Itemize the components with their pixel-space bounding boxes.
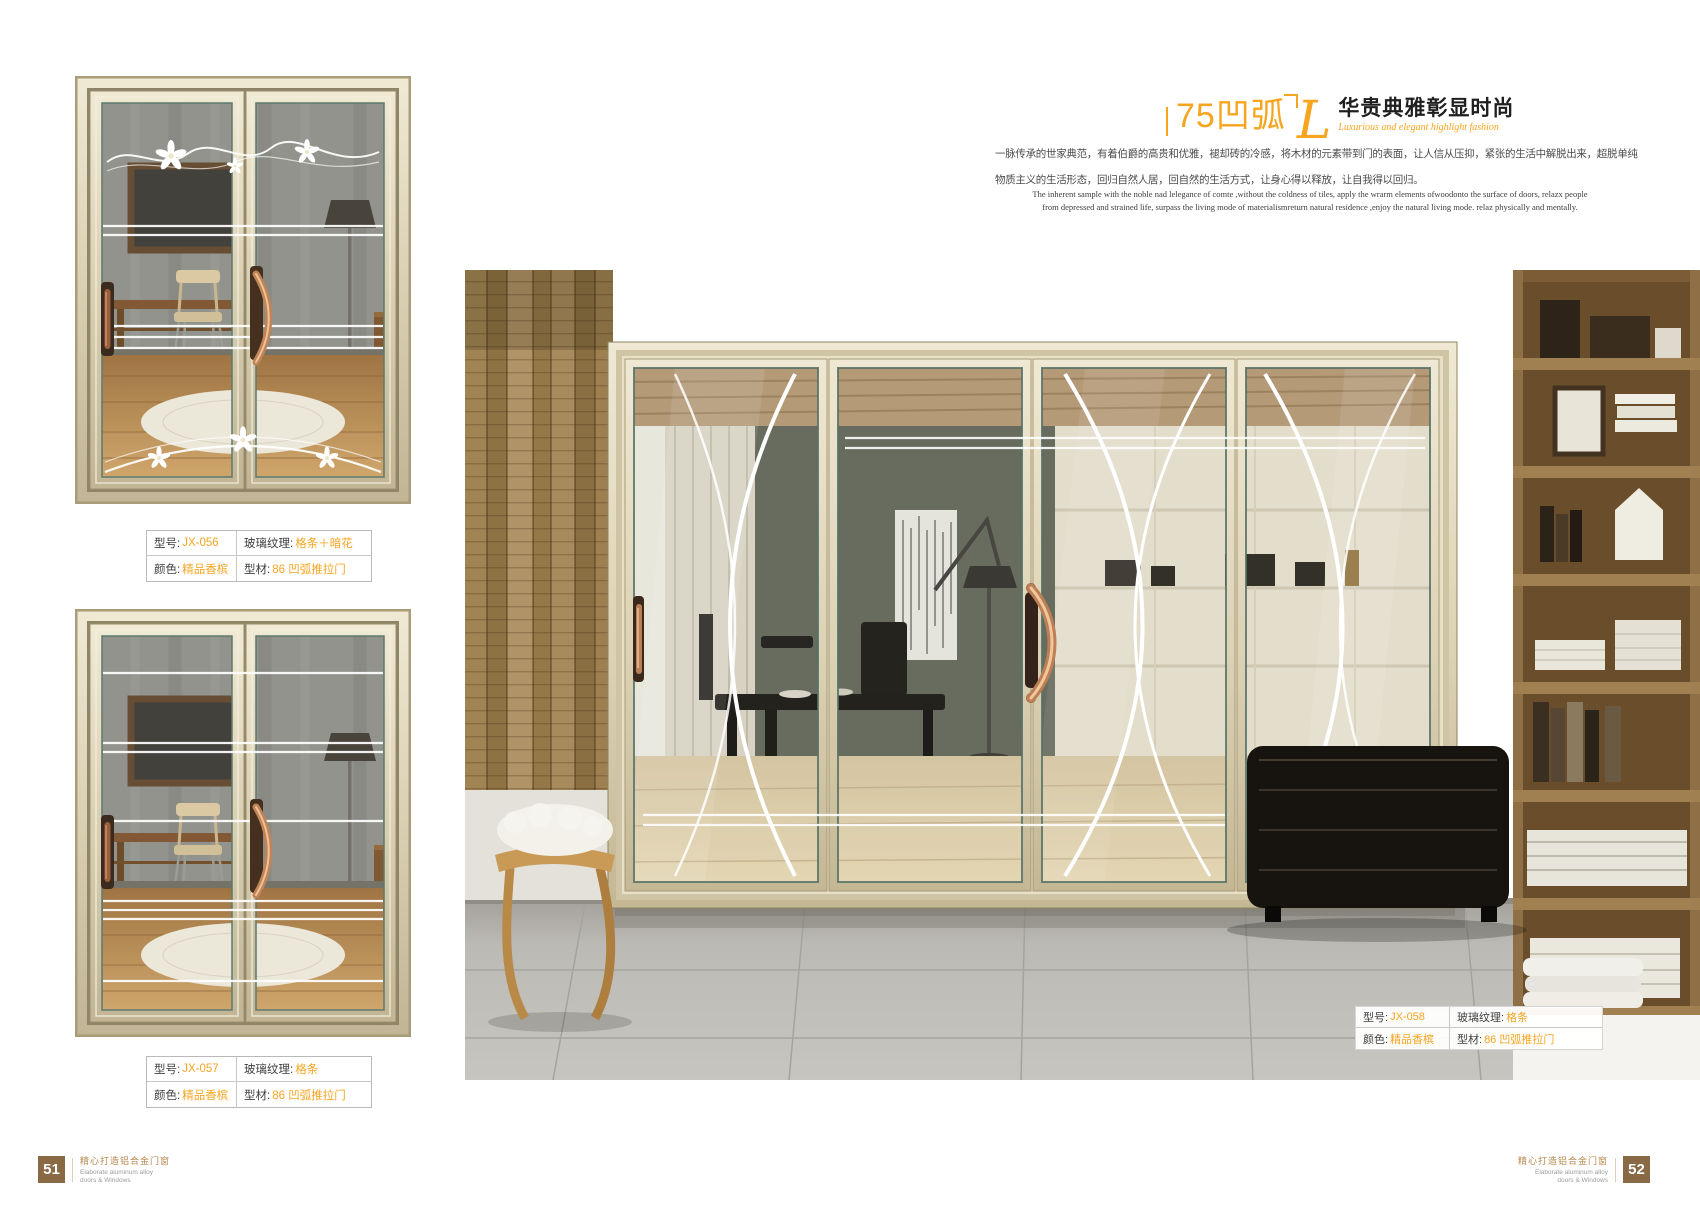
- spec-value: 精品香槟: [182, 561, 228, 577]
- spec-cell-profile: 型材:86 凹弧推拉门: [237, 1082, 371, 1107]
- product-photo-jx056: [75, 76, 411, 504]
- spec-cell-profile: 型材:86 凹弧推拉门: [237, 556, 371, 581]
- intro-cn-line1: 一脉传承的世家典范，有着伯爵的高贵和优雅，褪却砖的冷感，将木材的元素带到门的表面…: [995, 141, 1645, 167]
- footer-caption: 精心打造铝合金门窗 Elaborate aluminum alloy doors…: [1518, 1154, 1608, 1185]
- spec-label: 型材:: [244, 561, 270, 577]
- spec-table-jx058: 型号:JX-058 玻璃纹理:格条 颜色:86 凹弧推拉门精品香槟 型材:86 …: [1355, 1006, 1603, 1050]
- spec-value: 精品香槟: [182, 1087, 228, 1103]
- spec-value: 86 凹弧推拉门: [1484, 1031, 1554, 1047]
- spec-table-jx057: 型号:JX-057 玻璃纹理:格条 颜色:精品香槟 型材:86 凹弧推拉门: [146, 1056, 372, 1108]
- spec-table-jx056: 型号:JX-056 玻璃纹理:格条＋暗花 颜色:精品香槟 型材:86 凹弧推拉门: [146, 530, 372, 582]
- spec-cell-model: 型号:JX-057: [147, 1057, 237, 1082]
- footer-left: 51 精心打造铝合金门窗 Elaborate aluminum alloy do…: [38, 1154, 170, 1185]
- spec-cell-model: 型号:JX-058: [1356, 1007, 1450, 1028]
- intro-paragraph-en: The inherent sample with the noble nad l…: [988, 188, 1632, 213]
- door-illustration-jx056: [75, 76, 411, 504]
- intro-en-line2: from depressed and strained life, surpas…: [988, 201, 1632, 214]
- spec-value: 86 凹弧推拉门: [272, 1087, 346, 1103]
- spec-cell-color: 颜色:精品香槟: [147, 1082, 237, 1107]
- intro-en-line1: The inherent sample with the noble nad l…: [988, 188, 1632, 201]
- footer-divider: [1615, 1158, 1616, 1182]
- door-illustration-jx057: [75, 608, 411, 1038]
- series-title: 华贵典雅彰显时尚: [1338, 97, 1514, 120]
- spec-label: 型号:: [154, 1061, 180, 1077]
- spec-value: JX-057: [182, 1063, 218, 1075]
- spec-cell-glass: 玻璃纹理:格条: [1450, 1007, 1602, 1028]
- series-brand: 75凹弧: [1172, 99, 1290, 133]
- spec-cell-glass: 玻璃纹理:格条＋暗花: [237, 531, 371, 556]
- spec-value: 精品香槟: [1390, 1031, 1434, 1047]
- spec-cell-color: 颜色:86 凹弧推拉门精品香槟: [1356, 1028, 1450, 1049]
- spec-label: 型号:: [154, 535, 180, 551]
- bookshelf: [1513, 270, 1700, 1015]
- footer-caption-en-line1: Elaborate aluminum alloy: [80, 1169, 170, 1177]
- page-number-left: 51: [38, 1156, 65, 1183]
- spec-cell-model: 型号:JX-056: [147, 531, 237, 556]
- spec-label: 型号:: [1363, 1009, 1388, 1025]
- spec-label: 颜色:: [154, 561, 180, 577]
- footer-right: 精心打造铝合金门窗 Elaborate aluminum alloy doors…: [1518, 1154, 1650, 1185]
- series-title-block: 华贵典雅彰显时尚 Luxurious and elegant highlight…: [1338, 97, 1514, 133]
- catalog-page: 型号:JX-056 玻璃纹理:格条＋暗花 颜色:精品香槟 型材:86 凹弧推拉门: [0, 0, 1700, 1209]
- intro-paragraph-cn: 一脉传承的世家典范，有着伯爵的高贵和优雅，褪却砖的冷感，将木材的元素带到门的表面…: [995, 141, 1645, 193]
- footer-caption-en-line2: doors & Windows: [1518, 1177, 1608, 1185]
- spec-value: JX-056: [182, 537, 218, 549]
- spec-cell-profile: 型材:86 凹弧推拉门: [1450, 1028, 1602, 1049]
- footer-divider: [72, 1158, 73, 1182]
- spec-label: 玻璃纹理:: [244, 535, 293, 551]
- footer-caption-cn: 精心打造铝合金门窗: [80, 1154, 170, 1167]
- script-flourish: L: [1297, 102, 1332, 141]
- footer-caption-en-line2: doors & Windows: [80, 1177, 170, 1185]
- footer-caption-en: Elaborate aluminum alloy doors & Windows: [1518, 1169, 1608, 1185]
- spec-label: 型材:: [244, 1087, 270, 1103]
- spec-value: 格条＋暗花: [295, 535, 353, 551]
- page-number-right: 52: [1623, 1156, 1650, 1183]
- spec-value: 格条: [295, 1061, 318, 1077]
- spec-label: 玻璃纹理:: [244, 1061, 293, 1077]
- product-photo-jx057: [75, 608, 411, 1038]
- showcase-photo-jx058: 型号:JX-058 玻璃纹理:格条 颜色:86 凹弧推拉门精品香槟 型材:86 …: [465, 270, 1700, 1080]
- footer-caption-en-line1: Elaborate aluminum alloy: [1518, 1169, 1608, 1177]
- spec-cell-glass: 玻璃纹理:格条: [237, 1057, 371, 1082]
- spec-label: 玻璃纹理:: [1457, 1009, 1504, 1025]
- spec-cell-color: 颜色:精品香槟: [147, 556, 237, 581]
- footer-caption: 精心打造铝合金门窗 Elaborate aluminum alloy doors…: [80, 1154, 170, 1185]
- footer-caption-cn: 精心打造铝合金门窗: [1518, 1154, 1608, 1167]
- spec-value: 86 凹弧推拉门: [272, 561, 346, 577]
- spec-label: 颜色:: [1363, 1031, 1388, 1047]
- spec-label: 型材:: [1457, 1031, 1482, 1047]
- spec-value: 格条: [1506, 1009, 1528, 1025]
- spec-value: JX-058: [1390, 1011, 1425, 1023]
- series-header: 75凹弧 L 华贵典雅彰显时尚 Luxurious and elegant hi…: [1172, 94, 1514, 133]
- room-illustration: [465, 270, 1700, 1080]
- series-subtitle: Luxurious and elegant highlight fashion: [1338, 122, 1514, 133]
- footer-caption-en: Elaborate aluminum alloy doors & Windows: [80, 1169, 170, 1185]
- spec-label: 颜色:: [154, 1087, 180, 1103]
